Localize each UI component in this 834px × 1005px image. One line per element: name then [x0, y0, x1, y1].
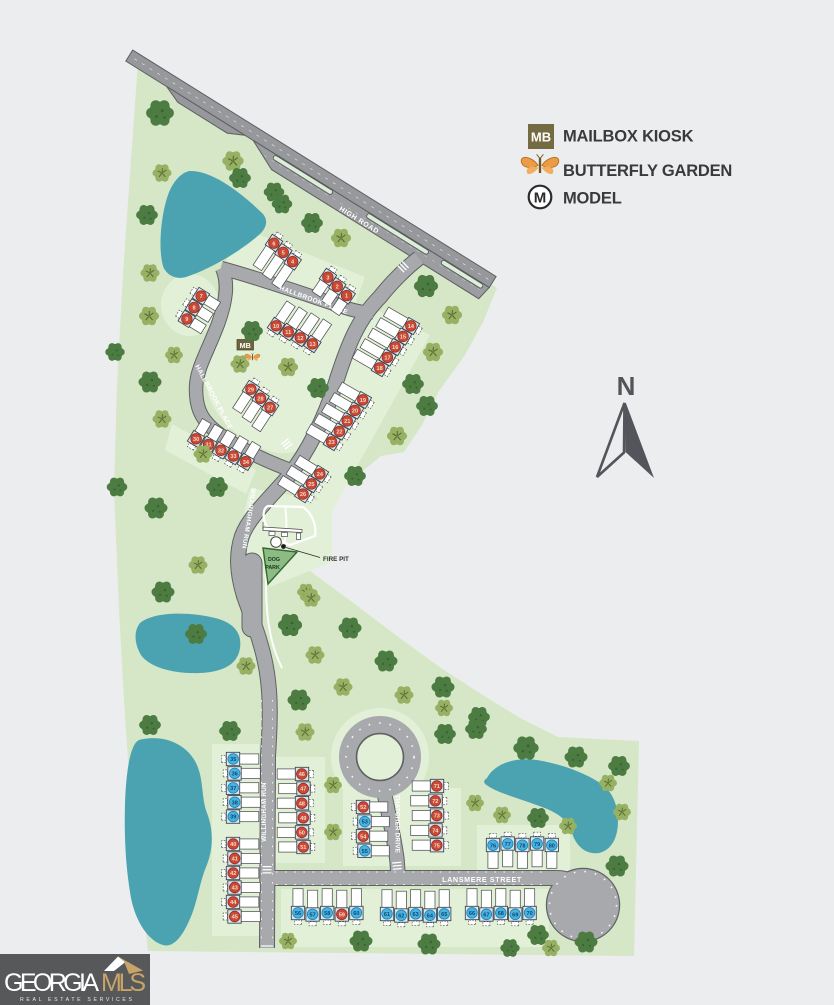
svg-text:THATCHER DRIVE: THATCHER DRIVE: [394, 795, 401, 853]
svg-text:63: 63: [412, 912, 418, 918]
svg-text:62: 62: [398, 913, 404, 919]
svg-text:73: 73: [434, 814, 440, 820]
svg-text:6: 6: [272, 241, 275, 247]
svg-text:64: 64: [427, 913, 434, 919]
svg-text:24: 24: [317, 472, 324, 478]
svg-text:GEORGIA: GEORGIA: [4, 969, 99, 997]
svg-text:41: 41: [232, 857, 238, 863]
svg-text:17: 17: [384, 356, 390, 362]
svg-text:78: 78: [519, 843, 525, 849]
svg-text:53: 53: [362, 820, 368, 826]
svg-text:60: 60: [353, 911, 359, 917]
svg-text:MB: MB: [531, 130, 551, 145]
svg-text:DOG: DOG: [268, 557, 280, 563]
svg-text:23: 23: [329, 440, 335, 446]
svg-text:14: 14: [408, 324, 415, 330]
svg-text:25: 25: [308, 482, 314, 488]
svg-text:35: 35: [230, 757, 236, 763]
svg-text:12: 12: [297, 336, 303, 342]
svg-text:43: 43: [232, 886, 238, 892]
svg-text:67: 67: [483, 912, 489, 918]
svg-text:18: 18: [377, 366, 383, 372]
svg-text:44: 44: [230, 900, 237, 906]
svg-text:56: 56: [295, 911, 301, 917]
svg-text:9: 9: [185, 317, 188, 323]
svg-text:40: 40: [230, 842, 236, 848]
svg-text:MAILBOX KIOSK: MAILBOX KIOSK: [563, 128, 694, 146]
svg-text:N: N: [617, 371, 636, 401]
svg-text:MB: MB: [240, 341, 251, 350]
svg-text:20: 20: [352, 409, 358, 415]
svg-text:58: 58: [324, 911, 330, 917]
svg-text:27: 27: [267, 405, 273, 411]
svg-text:72: 72: [432, 799, 438, 805]
svg-text:77: 77: [505, 842, 511, 848]
svg-text:7: 7: [200, 294, 203, 300]
svg-text:65: 65: [441, 912, 447, 918]
svg-text:15: 15: [400, 335, 406, 341]
svg-text:3: 3: [326, 275, 329, 281]
svg-text:FIRE PIT: FIRE PIT: [323, 556, 349, 563]
svg-text:1: 1: [345, 294, 348, 300]
svg-text:26: 26: [300, 492, 306, 498]
svg-text:WILLINGHAM RUN: WILLINGHAM RUN: [261, 782, 268, 842]
svg-text:11: 11: [285, 330, 291, 336]
svg-text:66: 66: [469, 911, 475, 917]
svg-text:42: 42: [230, 871, 236, 877]
svg-text:8: 8: [192, 306, 195, 312]
svg-text:M: M: [534, 190, 547, 207]
svg-text:52: 52: [360, 805, 366, 811]
svg-text:PARK: PARK: [265, 565, 280, 571]
svg-text:46: 46: [299, 772, 305, 778]
svg-text:61: 61: [384, 912, 390, 918]
svg-text:2: 2: [336, 284, 339, 290]
svg-text:71: 71: [434, 784, 440, 790]
svg-text:75: 75: [434, 843, 440, 849]
svg-text:74: 74: [432, 829, 439, 835]
svg-text:79: 79: [534, 842, 540, 848]
svg-text:16: 16: [392, 345, 398, 351]
svg-text:48: 48: [299, 801, 305, 807]
svg-text:21: 21: [344, 419, 350, 425]
svg-text:69: 69: [512, 912, 518, 918]
svg-text:49: 49: [300, 816, 306, 822]
svg-text:57: 57: [309, 912, 315, 918]
svg-text:68: 68: [498, 911, 504, 917]
svg-text:47: 47: [300, 787, 306, 793]
svg-text:29: 29: [248, 387, 254, 393]
svg-text:36: 36: [232, 772, 238, 778]
svg-text:34: 34: [243, 460, 250, 466]
svg-text:59: 59: [339, 912, 345, 918]
svg-text:32: 32: [218, 448, 224, 454]
svg-text:30: 30: [193, 437, 199, 443]
svg-text:45: 45: [232, 915, 238, 921]
svg-text:37: 37: [230, 786, 236, 792]
svg-text:22: 22: [336, 430, 342, 436]
svg-text:MLS: MLS: [101, 969, 146, 997]
svg-text:70: 70: [526, 911, 532, 917]
svg-text:51: 51: [300, 845, 306, 851]
svg-text:28: 28: [257, 396, 263, 402]
svg-text:76: 76: [490, 843, 496, 849]
svg-text:80: 80: [549, 843, 555, 849]
svg-text:50: 50: [299, 831, 305, 837]
svg-text:MODEL: MODEL: [563, 190, 622, 208]
svg-text:19: 19: [360, 398, 366, 404]
svg-text:33: 33: [230, 454, 236, 460]
svg-text:LANSMERE STREET: LANSMERE STREET: [442, 875, 522, 884]
svg-text:13: 13: [309, 342, 315, 348]
svg-text:BUTTERFLY GARDEN: BUTTERFLY GARDEN: [563, 162, 732, 180]
svg-text:5: 5: [282, 250, 285, 256]
svg-text:54: 54: [360, 834, 367, 840]
svg-text:10: 10: [273, 324, 279, 330]
svg-text:38: 38: [232, 800, 238, 806]
svg-text:55: 55: [362, 849, 368, 855]
svg-text:39: 39: [230, 815, 236, 821]
